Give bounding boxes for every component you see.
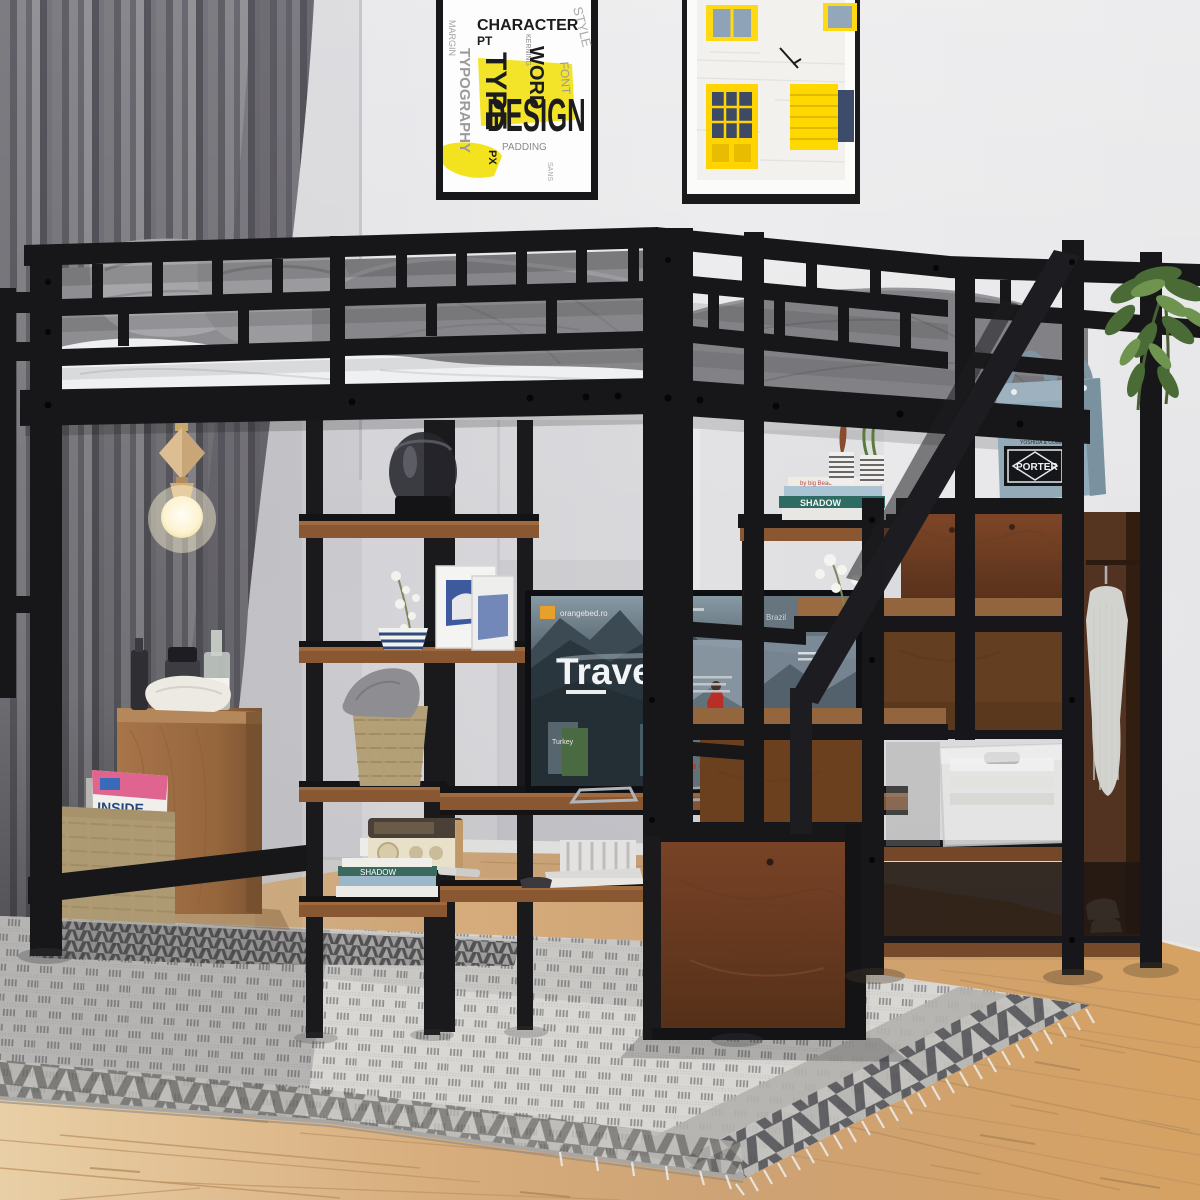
svg-text:PORTER: PORTER (1016, 462, 1058, 473)
svg-text:TYPOGRAPHY: TYPOGRAPHY (456, 48, 473, 153)
svg-text:MARGIN: MARGIN (447, 20, 457, 56)
svg-text:Brazil: Brazil (766, 613, 786, 622)
svg-text:SHADOW: SHADOW (360, 868, 396, 877)
svg-text:orangebed.ro: orangebed.ro (560, 609, 608, 618)
svg-text:Turkey: Turkey (552, 739, 574, 746)
svg-text:by big Bead: by big Bead (800, 481, 832, 487)
svg-text:PX: PX (486, 150, 498, 165)
svg-text:PADDING: PADDING (502, 142, 547, 153)
svg-text:SHADOW: SHADOW (800, 498, 842, 508)
svg-text:DESIGN: DESIGN (487, 89, 586, 141)
svg-text:CHARACTER: CHARACTER (477, 17, 579, 34)
svg-text:SANS: SANS (546, 162, 553, 181)
svg-text:PT: PT (477, 34, 493, 48)
